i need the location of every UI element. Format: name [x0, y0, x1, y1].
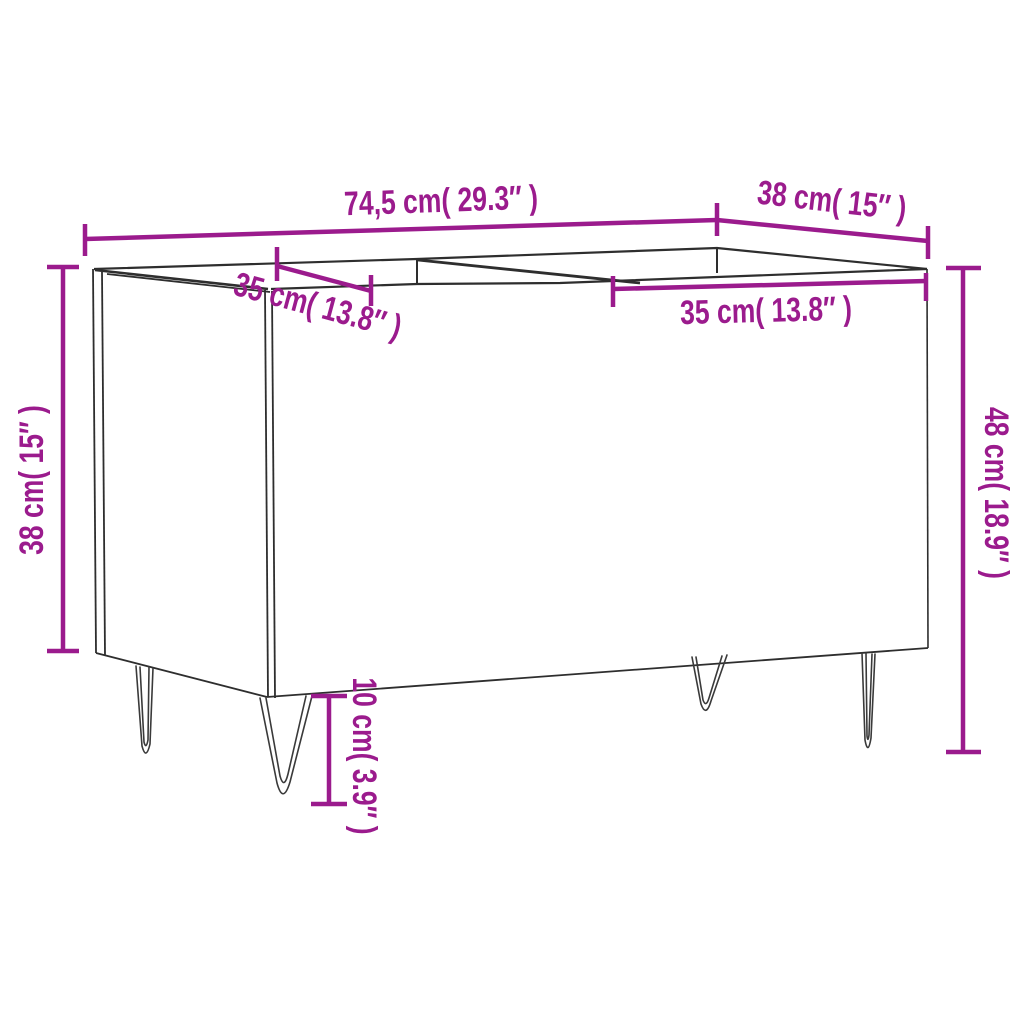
cabinet-front-left-edge-outer — [265, 290, 268, 697]
dimension-label-total-height: 48 cm( 18.9″ ) — [977, 407, 1015, 579]
cabinet-back-left-edge-outer — [93, 269, 96, 653]
dimension-label-depth: 38 cm( 15″ ) — [755, 173, 908, 228]
product-dimension-diagram: 74,5 cm( 29.3″ ) 38 cm( 15″ ) 38 cm( 15″… — [0, 0, 1024, 1024]
leg-back-left — [136, 666, 153, 753]
dimension-label-right-compartment: 35 cm( 13.8″ ) — [680, 290, 853, 332]
cabinet-back-rim — [94, 248, 927, 269]
cabinet-divider-top-edge — [418, 260, 640, 283]
cabinet-back-left-edge-inner — [102, 272, 105, 656]
cabinet-legs — [136, 653, 875, 794]
dimension-label-width: 74,5 cm( 29.3″ ) — [343, 178, 538, 223]
dimension-label-leg-height: 10 cm( 3.9″ ) — [345, 677, 383, 834]
cabinet-left-bottom-edge — [96, 653, 267, 697]
dimension-diagram-svg: 74,5 cm( 29.3″ ) 38 cm( 15″ ) 38 cm( 15″… — [0, 0, 1024, 1024]
dimension-leg-height-line — [311, 696, 347, 804]
dimension-body-height-line — [47, 267, 79, 651]
cabinet-front-left-edge-inner — [272, 291, 275, 698]
leg-front-left — [260, 696, 312, 794]
leg-front-right — [862, 653, 875, 748]
cabinet-right-edge — [927, 269, 928, 648]
dimension-total-height-line — [946, 268, 981, 752]
dimension-label-body-height: 38 cm( 15″ ) — [13, 405, 51, 555]
